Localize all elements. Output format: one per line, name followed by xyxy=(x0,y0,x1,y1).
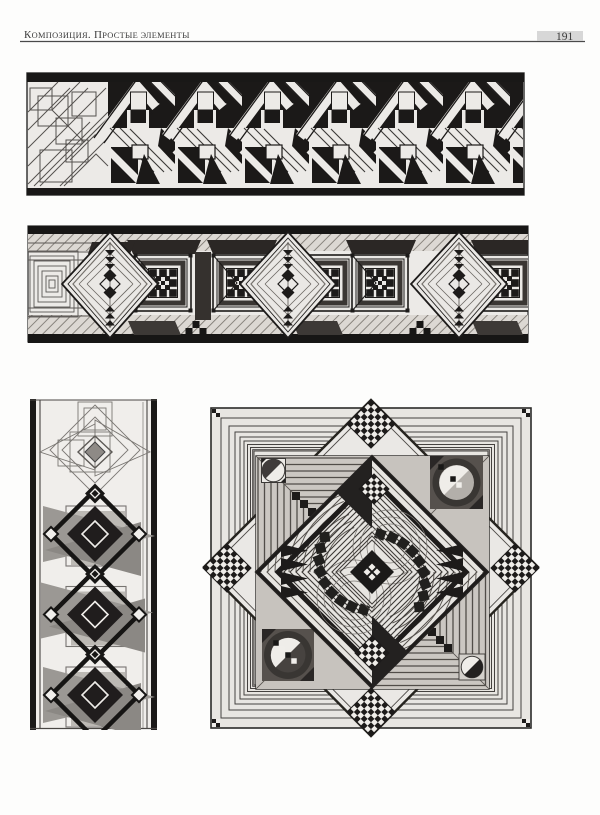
svg-text:КОМПОЗИЦИЯ. ПРОСТЫЕ ЭЛЕМЕНТЫ: КОМПОЗИЦИЯ. ПРОСТЫЕ ЭЛЕМЕНТЫ xyxy=(24,29,190,41)
svg-text:191: 191 xyxy=(556,31,574,43)
